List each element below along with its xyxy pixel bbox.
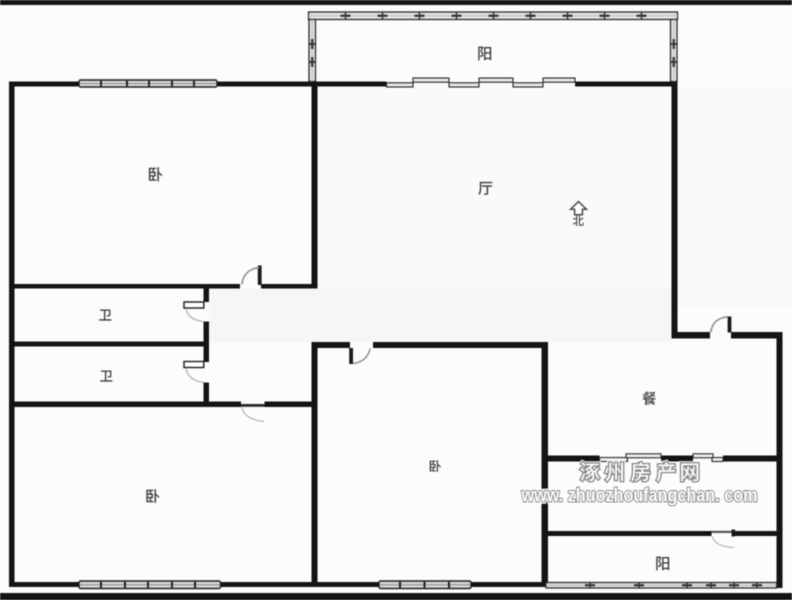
svg-text:www. zhuozhoufangchan. com: www. zhuozhoufangchan. com	[521, 486, 758, 507]
